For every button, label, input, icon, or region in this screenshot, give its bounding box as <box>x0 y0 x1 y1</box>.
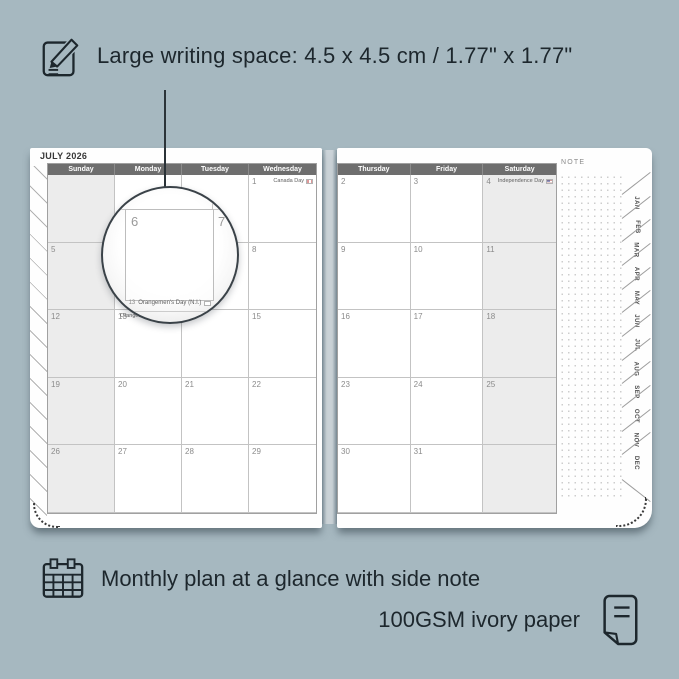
day-cell: 21 <box>182 378 249 446</box>
note-pencil-icon <box>38 32 84 80</box>
holiday-label: Independence Day <box>498 178 553 184</box>
magnified-holiday-row: 13 Orangemen's Day (N.I.) <box>103 300 237 306</box>
calendar-grid-icon <box>40 556 86 601</box>
day-number: 3 <box>414 177 418 186</box>
flag-icon <box>204 301 211 306</box>
day-cell: 27 <box>115 445 182 513</box>
callout-text-writing-space: Large writing space: 4.5 x 4.5 cm / 1.77… <box>97 43 572 69</box>
month-tab-label: DEC <box>633 456 639 470</box>
feature-callout-paper: 100GSM ivory paper <box>378 592 642 648</box>
day-number: 11 <box>486 245 494 254</box>
day-number: 20 <box>118 380 127 389</box>
magnified-day-number-left: 6 <box>131 214 138 229</box>
day-number: 16 <box>341 312 350 321</box>
day-cell: 28 <box>182 445 249 513</box>
day-cell: 29 <box>249 445 316 513</box>
magnified-writing-cell <box>125 209 214 301</box>
corner-stitch-right <box>616 497 647 527</box>
weekday-header-wednesday: Wednesday <box>249 164 316 175</box>
day-number: 29 <box>252 447 261 456</box>
month-tab-apr: APR <box>625 261 651 285</box>
month-tab-aug: AUG <box>625 356 651 380</box>
us-flag-icon <box>546 179 553 184</box>
ca-flag-icon <box>306 179 313 184</box>
page-spine <box>322 150 337 524</box>
weekday-header-tuesday: Tuesday <box>182 164 249 175</box>
day-cell: 16 <box>338 310 411 378</box>
magnifier-circle: 6 7 13 Orangemen's Day (N.I.) <box>101 186 239 324</box>
day-cell: 20 <box>115 378 182 446</box>
weekday-header-sunday: Sunday <box>48 164 115 175</box>
planner-product-image: Large writing space: 4.5 x 4.5 cm / 1.77… <box>0 0 679 679</box>
day-cell: 19 <box>48 378 115 446</box>
month-tab-dec: DEC <box>625 450 651 474</box>
day-cell: 23 <box>338 378 411 446</box>
magnified-gridline-vertical <box>212 188 213 209</box>
day-cell: 30 <box>338 445 411 513</box>
day-number: 23 <box>341 380 350 389</box>
day-number: 1 <box>252 177 256 186</box>
day-number: 15 <box>252 312 261 321</box>
day-number: 25 <box>486 380 495 389</box>
month-tab-oct: OCT <box>625 403 651 427</box>
month-tab-jul: JUL <box>625 332 651 356</box>
day-number: 22 <box>252 380 261 389</box>
day-cell: 3 <box>411 175 484 243</box>
day-cell: 18 <box>483 310 556 378</box>
callout-text-monthly-plan: Monthly plan at a glance with side note <box>101 566 480 592</box>
month-tab-mar: MAR <box>625 237 651 261</box>
month-tab-jun: JUN <box>625 308 651 332</box>
planner-right-page: ThursdayFridaySaturday234Independence Da… <box>337 148 652 528</box>
weekday-header-thursday: Thursday <box>338 164 411 175</box>
day-cell: 10 <box>411 243 484 311</box>
day-number: 18 <box>486 312 495 321</box>
day-number: 17 <box>414 312 423 321</box>
weekday-header-monday: Monday <box>115 164 182 175</box>
month-tab-jan: JAN <box>625 190 651 214</box>
holiday-text: Independence Day <box>498 178 544 184</box>
day-cell: 15 <box>249 310 316 378</box>
magnified-day-number-right: 7 <box>218 214 225 229</box>
day-cell: 4Independence Day <box>483 175 556 243</box>
paper-icon <box>596 592 642 648</box>
callout-text-paper: 100GSM ivory paper <box>378 607 580 633</box>
month-tab-sep: SEP <box>625 379 651 403</box>
page-edge-hatching <box>30 166 47 522</box>
day-number: 30 <box>341 447 350 456</box>
day-cell: 22 <box>249 378 316 446</box>
day-cell <box>483 445 556 513</box>
day-cell: 1Canada Day <box>249 175 316 243</box>
day-number: 28 <box>185 447 194 456</box>
corner-stitch-left <box>33 503 60 528</box>
weekday-header-saturday: Saturday <box>483 164 556 175</box>
day-cell: 9 <box>338 243 411 311</box>
month-index-tabs: JANFEBMARAPRMAYJUNJULAUGSEPOCTNOVDEC <box>625 190 651 474</box>
day-number: 2 <box>341 177 345 186</box>
day-cell: 11 <box>483 243 556 311</box>
day-cell: 12 <box>48 310 115 378</box>
day-cell: 8 <box>249 243 316 311</box>
magnified-footer-day: 13 <box>129 300 136 306</box>
magnified-gridline-bottom <box>103 311 237 312</box>
day-cell: 2 <box>338 175 411 243</box>
day-number: 21 <box>185 380 194 389</box>
day-cell: 24 <box>411 378 484 446</box>
callout-connector-line <box>164 90 166 188</box>
month-title: JULY 2026 <box>40 151 87 161</box>
calendar-grid-right: ThursdayFridaySaturday234Independence Da… <box>337 163 557 514</box>
day-number: 5 <box>51 245 55 254</box>
weekday-header-friday: Friday <box>411 164 484 175</box>
holiday-label: Canada Day <box>273 178 313 184</box>
day-number: 26 <box>51 447 60 456</box>
day-number: 4 <box>486 177 490 186</box>
month-tab-nov: NOV <box>625 427 651 451</box>
feature-callout-writing-space: Large writing space: 4.5 x 4.5 cm / 1.77… <box>38 32 572 80</box>
day-cell: 31 <box>411 445 484 513</box>
day-number: 10 <box>414 245 423 254</box>
day-number: 9 <box>341 245 345 254</box>
note-label: NOTE <box>561 159 585 166</box>
day-cell: 17 <box>411 310 484 378</box>
day-number: 12 <box>51 312 60 321</box>
day-cell: 25 <box>483 378 556 446</box>
day-number: 27 <box>118 447 127 456</box>
day-number: 24 <box>414 380 423 389</box>
day-number: 19 <box>51 380 60 389</box>
note-dot-grid <box>559 174 625 500</box>
magnified-holiday-label: Orangemen's Day (N.I.) <box>138 300 201 306</box>
day-number: 31 <box>414 447 423 456</box>
holiday-text: Canada Day <box>273 178 304 184</box>
day-number: 8 <box>252 245 256 254</box>
